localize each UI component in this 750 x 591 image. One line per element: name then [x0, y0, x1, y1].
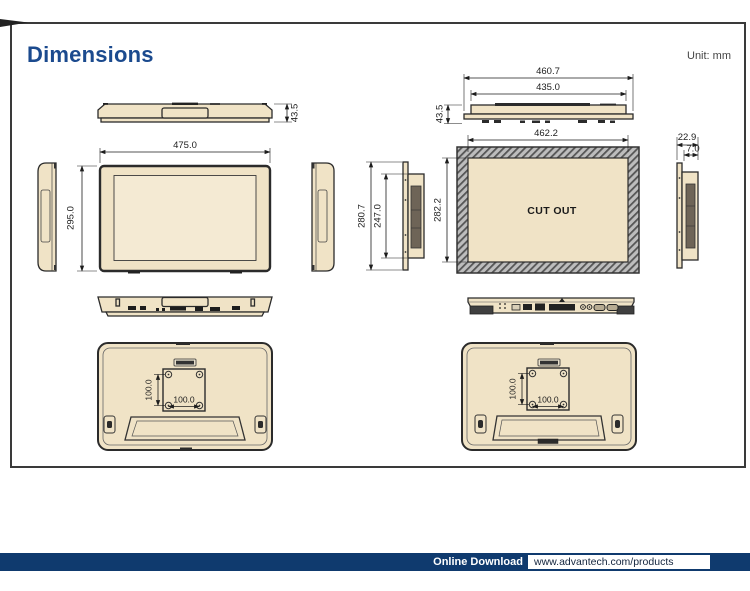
dim-rear-depth: 7.0	[684, 144, 700, 162]
dim-rear-top-height: 43.5	[435, 105, 462, 124]
dim-top-view-height: 43.5	[274, 104, 301, 123]
top-view-left	[98, 103, 272, 122]
mount-tab-right	[617, 306, 634, 314]
rear-tray-right	[493, 416, 605, 440]
dim-label-vesa-left-height: 100.0	[143, 379, 153, 401]
dim-label-vesa-right-height: 100.0	[507, 378, 517, 400]
footer-url-link[interactable]: www.advantech.com/products	[528, 555, 710, 569]
dim-rear-top-body-width: 435.0	[471, 82, 626, 101]
front-screen-area	[114, 176, 256, 261]
mount-tab-left	[470, 306, 493, 314]
dim-label-vesa-left-width: 100.0	[173, 395, 195, 405]
side-view-right	[312, 163, 334, 271]
cutout-label: CUT OUT	[527, 205, 577, 217]
speaker-left	[104, 416, 115, 433]
usb-port	[523, 304, 532, 310]
speaker-right	[612, 415, 623, 433]
cutout-view: CUT OUT	[457, 147, 639, 273]
dim-front-width: 475.0	[100, 140, 270, 163]
speaker-left	[475, 415, 486, 433]
io-connector	[549, 304, 575, 311]
dim-label-top-height: 43.5	[290, 104, 301, 123]
side-view-far-right	[677, 163, 698, 268]
dim-label-rear-depth: 7.0	[686, 144, 699, 155]
dim-label-cutout-height: 282.2	[433, 198, 444, 222]
db-connector	[607, 305, 618, 311]
side-view-middle	[403, 162, 424, 270]
dim-label-vesa-right-width: 100.0	[537, 395, 559, 405]
bottom-view-left	[98, 297, 272, 316]
dim-side-body-height: 247.0	[373, 174, 407, 258]
db-connector	[594, 305, 605, 311]
usb-port	[535, 304, 545, 311]
front-view	[100, 166, 270, 274]
bottom-view-right	[468, 298, 634, 314]
dim-label-rear-top-body: 435.0	[536, 82, 560, 93]
advantech-logo-badge	[174, 359, 196, 366]
dim-label-cutout-width: 462.2	[534, 128, 558, 139]
dim-label-rear-top-outer: 460.7	[536, 66, 560, 77]
page-corner-marker	[0, 19, 28, 27]
speaker-right	[255, 416, 266, 433]
top-view-right	[464, 103, 633, 123]
dim-label-side-flange: 280.7	[357, 204, 368, 228]
dim-label-front-width: 475.0	[173, 140, 197, 151]
online-download-label: Online Download	[433, 556, 523, 568]
rear-view-right: 100.0 100.0	[462, 342, 636, 450]
dim-label-side-body: 247.0	[373, 204, 384, 228]
dim-label-total-depth: 22.9	[678, 132, 697, 143]
side-view-left	[38, 163, 56, 271]
dim-label-front-height: 295.0	[66, 206, 77, 230]
rear-view-left: 100.0 100.0	[98, 342, 272, 451]
dim-label-rear-top-height: 43.5	[435, 105, 446, 124]
dimension-drawing: 43.5 475.0 295.0	[0, 0, 750, 591]
footer-bar: Online Download www.advantech.com/produc…	[0, 553, 750, 571]
dim-front-height: 295.0	[66, 166, 97, 271]
advantech-logo-badge	[538, 359, 560, 366]
rear-handle-left	[125, 417, 245, 440]
